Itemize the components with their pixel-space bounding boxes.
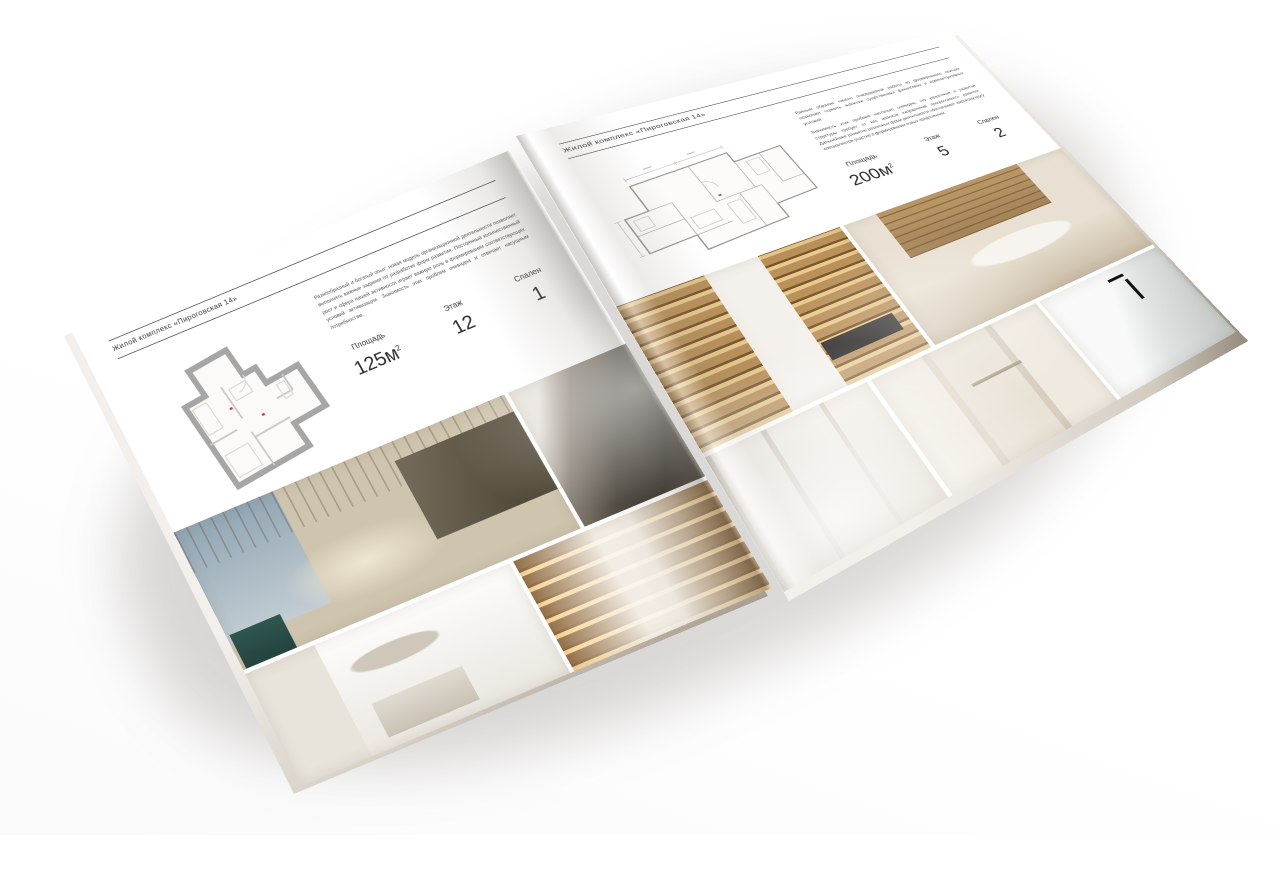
spec-bedrooms: Спален 1: [513, 266, 558, 309]
spec-floor: Этаж 12: [441, 298, 480, 339]
photo-scene: Жилой комплекс «Пироговская 14»: [0, 0, 1280, 835]
spec-area: Площадь 125м2: [343, 328, 408, 380]
spec-area: Площадь 200м2: [837, 151, 900, 190]
spec-bedrooms: Спален 2: [976, 114, 1017, 143]
spec-floor: Этаж 5: [922, 133, 957, 161]
